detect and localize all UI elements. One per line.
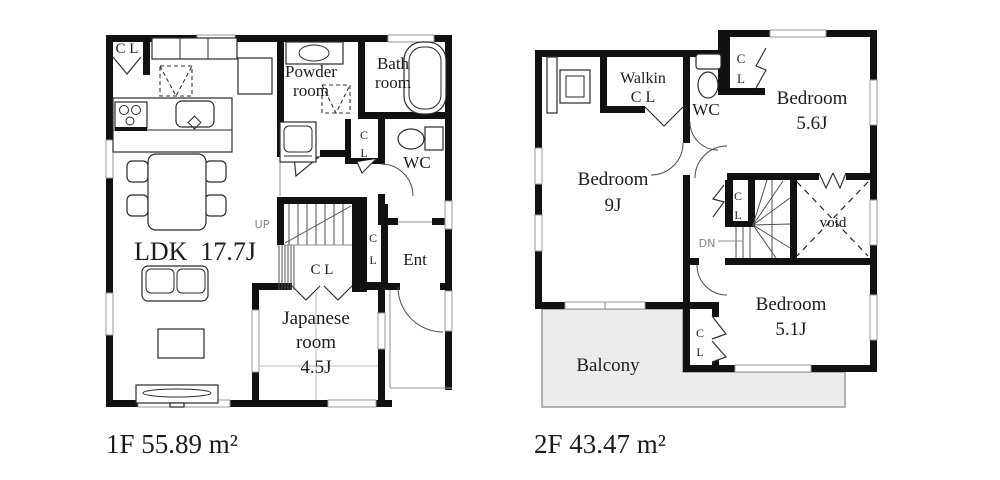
- label-cl-stairs2-l: L: [734, 208, 741, 222]
- sink-icon: [176, 101, 214, 129]
- area-label-2f: 2F 43.47 m²: [534, 429, 666, 459]
- label-bedroom51-1: Bedroom: [756, 294, 827, 315]
- label-balcony: Balcony: [576, 355, 640, 376]
- label-cl51-l: L: [696, 345, 703, 359]
- area-label-1f: 1F 55.89 m²: [106, 429, 238, 459]
- label-bedroom9-2: 9J: [605, 195, 622, 216]
- label-wc-2f: WC: [692, 100, 719, 119]
- refrigerator-icon: [160, 66, 192, 96]
- dining-table: [148, 154, 206, 230]
- label-powder-1: Powder: [285, 62, 337, 81]
- label-ldk: LDK 17.7J: [134, 237, 256, 266]
- toilet-icon-1f: [398, 127, 443, 150]
- walkin-folding-door: [645, 107, 683, 126]
- label-walkin-1: Walkin: [620, 70, 666, 87]
- coffee-table: [158, 329, 204, 358]
- porch-lines: [390, 290, 452, 388]
- label-japanese-3: 4.5J: [300, 357, 331, 378]
- closet-folding-door: [712, 341, 726, 362]
- label-cl-ent-c: C: [369, 231, 377, 245]
- floor-plan-2f: Walkin C L WC C L Bedroom 5.6J Bedroom 9…: [535, 30, 877, 407]
- label-japanese-1: Japanese: [282, 308, 350, 329]
- label-ent: Ent: [403, 250, 427, 269]
- label-cl-stairs: C L: [311, 262, 334, 278]
- closet-door-mark: [756, 48, 766, 88]
- label-wc-1f: WC: [403, 153, 430, 172]
- label-cl-top: C L: [116, 41, 139, 57]
- washing-machine: [280, 122, 316, 162]
- label-bedroom51-2: 5.1J: [775, 319, 806, 340]
- label-walkin-2: C L: [631, 89, 655, 106]
- kitchen-counter: [113, 98, 232, 152]
- label-bedroom9-1: Bedroom: [578, 169, 649, 190]
- toilet-icon-2f: [696, 54, 721, 98]
- sofa-icon: [142, 266, 208, 301]
- label-cl-ne-l: L: [737, 71, 745, 86]
- closet-door-mark: [713, 185, 724, 217]
- label-dn: DN: [699, 237, 716, 250]
- label-japanese-2: room: [296, 332, 336, 353]
- label-cl-ent-l: L: [369, 253, 376, 267]
- label-cl51-c: C: [696, 326, 704, 340]
- closet-folding-door: [324, 286, 352, 300]
- label-cl-stairs2-c: C: [734, 189, 742, 203]
- label-up: UP: [255, 218, 270, 231]
- void-opening-mark: [819, 173, 833, 188]
- closet-folding-door: [712, 316, 726, 339]
- stove-icon: [115, 102, 147, 131]
- desk-icon: [547, 57, 590, 113]
- label-bath-1: Bath: [377, 54, 410, 73]
- label-bedroom56-2: 5.6J: [796, 113, 827, 134]
- label-cl-ne-c: C: [737, 51, 746, 66]
- label-cl-mid-c: C: [360, 128, 368, 142]
- void-opening-mark: [833, 173, 846, 188]
- label-powder-2: room: [293, 81, 329, 100]
- label-void: void: [820, 215, 847, 231]
- floorplan-page: C L Powder room Bath room C L WC UP LDK …: [0, 0, 1000, 480]
- label-bath-2: room: [375, 73, 411, 92]
- dining-set: [127, 154, 226, 230]
- label-cl-mid-l: L: [360, 146, 367, 160]
- powder-sink: [286, 42, 343, 64]
- closet-folding-door: [113, 57, 141, 74]
- floor-plan-1f: C L Powder room Bath room C L WC UP LDK …: [106, 35, 452, 407]
- label-bedroom56-1: Bedroom: [777, 88, 848, 109]
- floorplan-drawing: C L Powder room Bath room C L WC UP LDK …: [0, 0, 1000, 480]
